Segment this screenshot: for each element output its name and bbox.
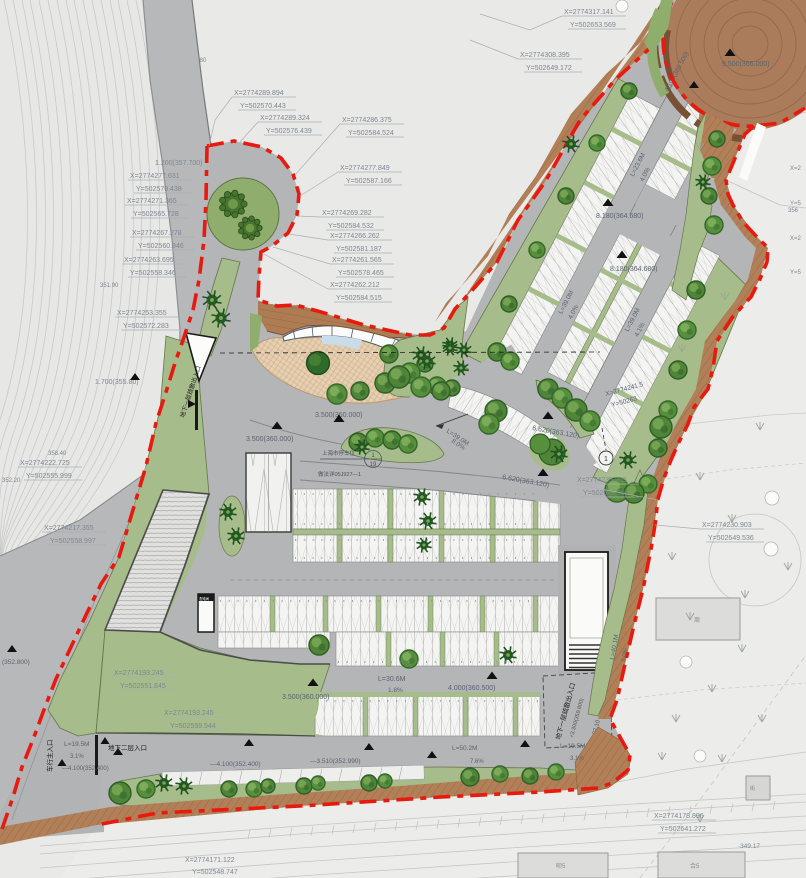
svg-text:Y=502560.946: Y=502560.946	[138, 243, 184, 250]
svg-text:Y=502548.747: Y=502548.747	[192, 869, 238, 876]
svg-text:1.8%: 1.8%	[388, 687, 403, 694]
svg-text:356: 356	[788, 208, 799, 214]
svg-text:L=19.5M: L=19.5M	[64, 741, 89, 748]
svg-text:—4.100(352.400): —4.100(352.400)	[210, 761, 261, 768]
svg-text:X=2: X=2	[790, 166, 802, 172]
svg-text:X=2774253.355: X=2774253.355	[117, 310, 167, 317]
svg-text:358.40: 358.40	[48, 451, 67, 457]
svg-text:X=2774217.355: X=2774217.355	[44, 525, 94, 532]
svg-text:Y=502649.536: Y=502649.536	[708, 535, 754, 542]
svg-text:Y=502649.172: Y=502649.172	[526, 65, 572, 72]
svg-text:352.20: 352.20	[2, 478, 21, 484]
svg-text:X=2774271.365: X=2774271.365	[127, 198, 177, 205]
svg-text:Y=502572.283: Y=502572.283	[123, 323, 169, 330]
svg-text:3.1%: 3.1%	[70, 754, 84, 760]
svg-text:L=19.5M: L=19.5M	[560, 743, 585, 750]
svg-text:X=2774266.262: X=2774266.262	[330, 233, 380, 240]
svg-text:X=2774193.245: X=2774193.245	[164, 710, 214, 717]
svg-text:X=2774171.122: X=2774171.122	[185, 857, 235, 864]
svg-text:7.6%: 7.6%	[470, 759, 484, 765]
svg-text:X=2774286.375: X=2774286.375	[342, 117, 392, 124]
svg-text:1.200(357.700): 1.200(357.700)	[155, 160, 202, 167]
svg-text:·349.17: ·349.17	[738, 843, 760, 850]
svg-text:Y=502641.272: Y=502641.272	[660, 826, 706, 833]
svg-text:(352.800): (352.800)	[2, 659, 30, 666]
svg-text:X=2774230.903: X=2774230.903	[702, 522, 752, 529]
svg-text:Y=502559.544: Y=502559.544	[170, 723, 216, 730]
svg-text:X=2774263.695: X=2774263.695	[124, 257, 174, 264]
svg-text:Y=502587.166: Y=502587.166	[346, 178, 392, 185]
svg-text:Y=502653.569: Y=502653.569	[570, 22, 616, 29]
svg-text:地下二层入口: 地下二层入口	[108, 743, 147, 752]
svg-text:车行主入口: 车行主入口	[45, 740, 54, 773]
svg-text:1: 1	[604, 456, 608, 463]
svg-text:9.500(366.000): 9.500(366.000)	[722, 61, 769, 68]
svg-text:19: 19	[370, 462, 377, 468]
svg-text:X=2774193.245: X=2774193.245	[114, 670, 164, 677]
svg-text:X=2774262.212: X=2774262.212	[330, 282, 380, 289]
svg-text:合5: 合5	[690, 862, 700, 870]
svg-text:Y=502642.959: Y=502642.959	[583, 490, 629, 497]
svg-text:8.180(364.680): 8.180(364.680)	[610, 266, 657, 273]
svg-text:X=2774277.849: X=2774277.849	[340, 165, 390, 172]
svg-text:—3.510(352.990): —3.510(352.990)	[310, 758, 361, 765]
svg-text:4.000(360.500): 4.000(360.500)	[448, 685, 495, 692]
svg-text:配电间: 配电间	[200, 596, 210, 601]
svg-text:X=2774289.324: X=2774289.324	[260, 115, 310, 122]
svg-text:X=2774235.255: X=2774235.255	[577, 477, 627, 484]
svg-text:呗5: 呗5	[556, 863, 566, 870]
svg-text:Y=502584.532: Y=502584.532	[328, 223, 374, 230]
svg-text:Y=502576.439: Y=502576.439	[266, 128, 312, 135]
svg-text:街: 街	[750, 785, 755, 792]
svg-text:X=2774269.282: X=2774269.282	[322, 210, 372, 217]
svg-text:做法详05J927—1: 做法详05J927—1	[318, 470, 361, 478]
svg-text:Y=502558.997: Y=502558.997	[50, 538, 96, 545]
svg-text:Y=502555.999: Y=502555.999	[26, 473, 72, 480]
svg-text:8.180(364.680): 8.180(364.680)	[596, 213, 643, 220]
svg-text:Y=502558.346: Y=502558.346	[130, 270, 176, 277]
svg-text:Y=502584.515: Y=502584.515	[336, 295, 382, 302]
svg-text:X=2774222.725: X=2774222.725	[20, 460, 70, 467]
svg-text:Y=502581.187: Y=502581.187	[336, 246, 382, 253]
svg-text:3.1%: 3.1%	[570, 756, 584, 762]
svg-text:周: 周	[694, 617, 700, 624]
svg-text:351.90: 351.90	[100, 283, 119, 289]
svg-text:Y=5: Y=5	[790, 201, 802, 207]
svg-text:X=2774277.631: X=2774277.631	[130, 173, 180, 180]
svg-text:X=2774317.141: X=2774317.141	[564, 9, 614, 16]
svg-text:X=2774308.395: X=2774308.395	[520, 52, 570, 59]
svg-text:—4.100(352.400): —4.100(352.400)	[62, 766, 109, 772]
svg-text:Y=5: Y=5	[790, 270, 802, 276]
svg-text:3.500(360.000): 3.500(360.000)	[282, 694, 329, 701]
svg-text:上海市停车位: 上海市停车位	[322, 449, 356, 457]
svg-text:1.700(355.80): 1.700(355.80)	[95, 379, 139, 386]
svg-text:Y=502570.443: Y=502570.443	[240, 103, 286, 110]
svg-text:Y=502565.728: Y=502565.728	[133, 211, 179, 218]
svg-text:X=2774261.565: X=2774261.565	[332, 257, 382, 264]
svg-text:Y=502578.465: Y=502578.465	[338, 270, 384, 277]
svg-text:L=30.6M: L=30.6M	[378, 676, 406, 683]
svg-text:Y=502584.524: Y=502584.524	[348, 130, 394, 137]
svg-text:X=2774267.278: X=2774267.278	[132, 230, 182, 237]
svg-text:Y=502551.845: Y=502551.845	[120, 683, 166, 690]
svg-text:3.500(360.000): 3.500(360.000)	[246, 436, 293, 443]
svg-text:X=2774178.896: X=2774178.896	[654, 813, 704, 820]
svg-text:X=2: X=2	[790, 236, 802, 242]
svg-text:X=2774289.894: X=2774289.894	[234, 90, 284, 97]
svg-text:L=50.2M: L=50.2M	[452, 745, 477, 752]
svg-text:Y=502570.438: Y=502570.438	[136, 186, 182, 193]
